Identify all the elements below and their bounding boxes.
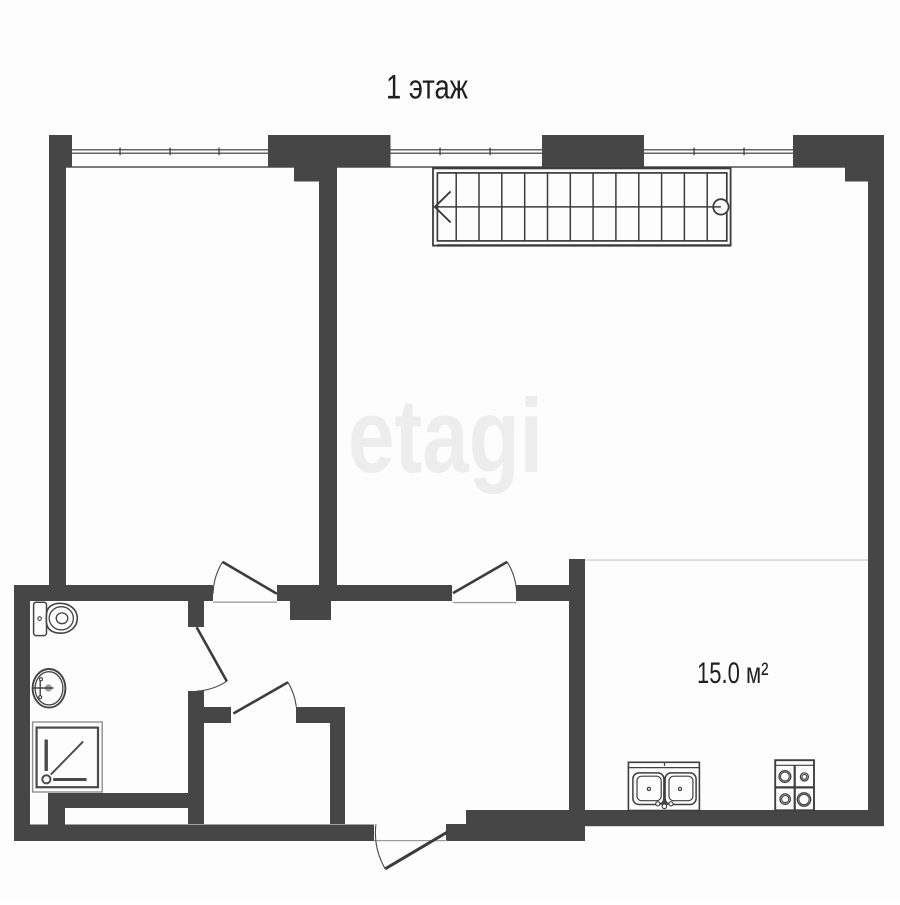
svg-text:etagi: etagi xyxy=(348,378,543,495)
svg-text:1 этаж: 1 этаж xyxy=(386,69,468,107)
svg-text:15.0 м²: 15.0 м² xyxy=(697,657,769,690)
